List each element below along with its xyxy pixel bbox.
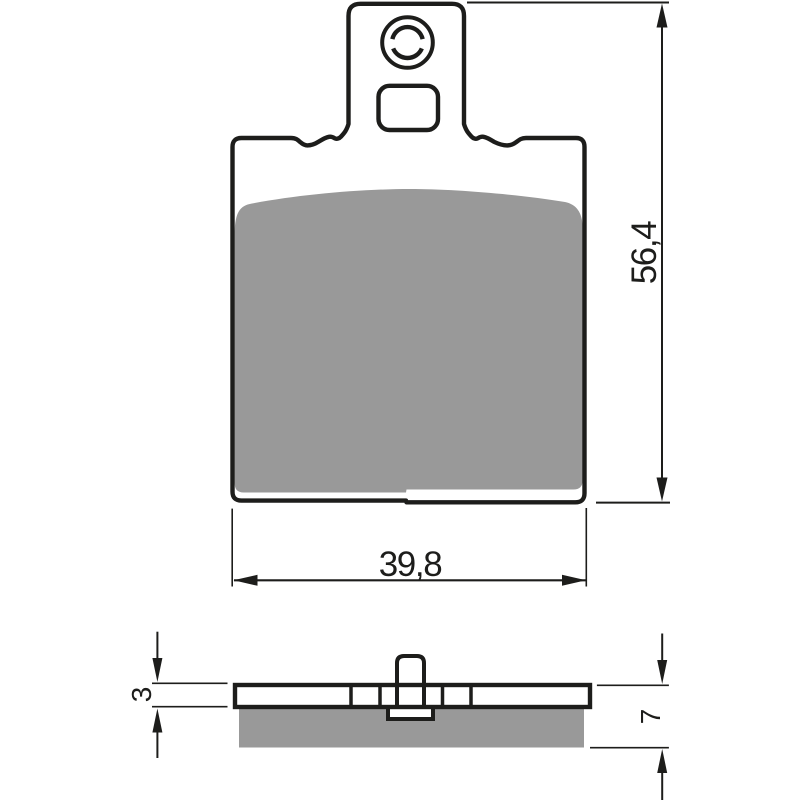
svg-text:3: 3	[126, 687, 157, 703]
svg-text:39,8: 39,8	[379, 545, 442, 584]
svg-text:7: 7	[635, 709, 666, 725]
svg-text:56,4: 56,4	[625, 221, 664, 284]
